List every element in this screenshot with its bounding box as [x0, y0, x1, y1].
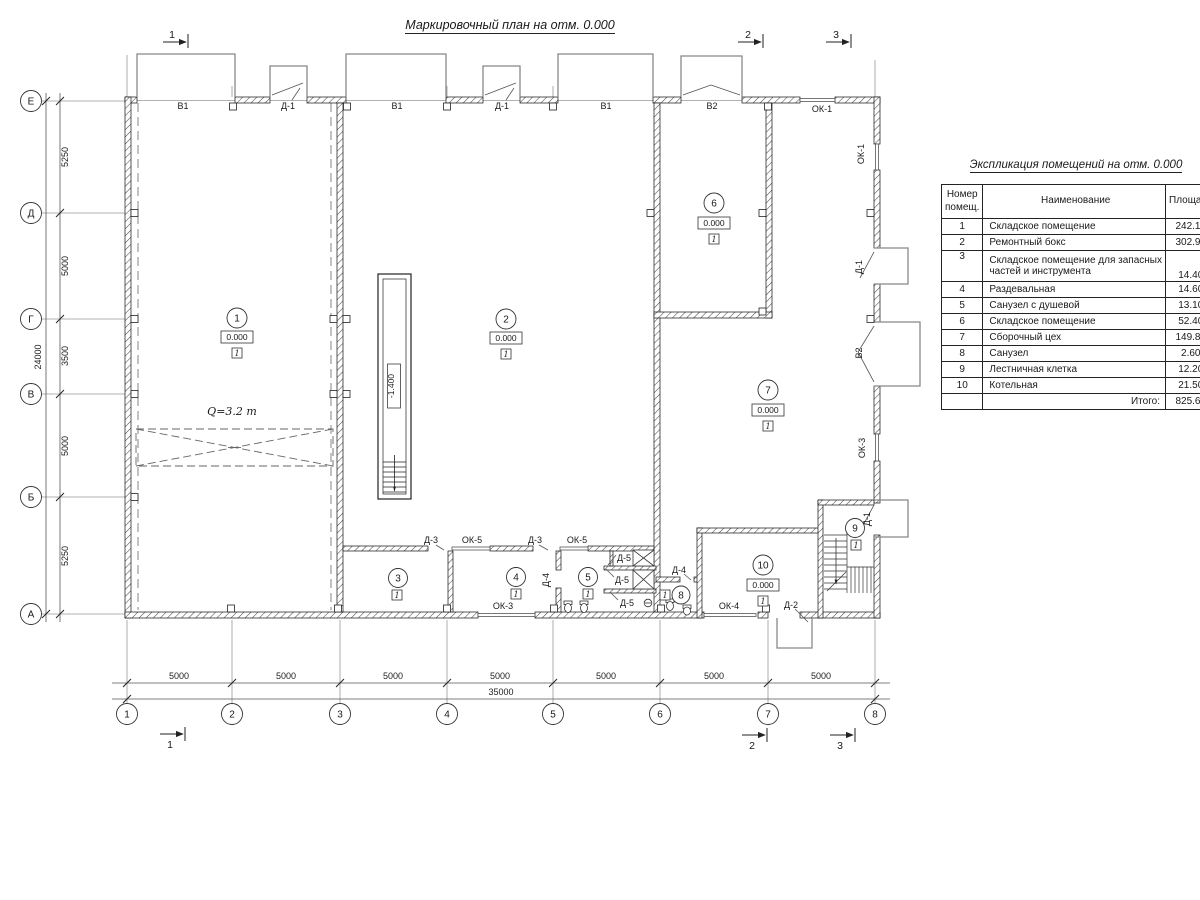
label-door-d3-2: Д-3: [528, 535, 542, 545]
dim-bottom-3: 5000: [383, 671, 403, 681]
svg-text:3: 3: [395, 574, 401, 585]
grid-row-e: Е: [28, 97, 35, 108]
room-marker-8: 8 1: [660, 586, 690, 604]
grid-row-b: Б: [28, 493, 35, 504]
grid-col-6: 6: [657, 710, 663, 721]
door-d2-canopy-bottom: [777, 618, 812, 648]
explication-row: 8 Санузел 2.60: [942, 346, 1200, 362]
room-marker-3: 3 1: [389, 569, 408, 601]
windows: [452, 99, 879, 617]
svg-text:0.000: 0.000: [703, 218, 725, 228]
grid-col-8: 8: [872, 710, 878, 721]
label-gate-v1-3: В1: [600, 101, 611, 111]
toilet: [564, 601, 572, 613]
label-door-d1-right-2: Д-1: [862, 512, 872, 526]
explication-row: 1 Складское помещение 242.10: [942, 219, 1200, 235]
svg-text:0.000: 0.000: [495, 333, 517, 343]
crane-bridge: [136, 429, 333, 466]
gate-v2-canopy-right: [874, 322, 920, 386]
gate-v1-canopy-2: [346, 54, 446, 97]
dim-bottom-4: 5000: [490, 671, 510, 681]
label-window-ok1-right: ОК-1: [856, 144, 866, 164]
label-window-ok5-1: ОК-5: [462, 535, 482, 545]
room-marker-7: 7 0.000 1: [752, 380, 784, 431]
gate-v1-canopy-3: [558, 54, 653, 97]
room-marker-5: 5 1: [579, 568, 598, 600]
svg-text:4: 4: [513, 573, 519, 584]
svg-text:0.000: 0.000: [752, 580, 774, 590]
svg-text:2: 2: [503, 315, 509, 326]
dim-bottom-6: 5000: [704, 671, 724, 681]
label-door-d3-1: Д-3: [424, 535, 438, 545]
section-mark-1-bottom: 1: [167, 739, 173, 751]
label-window-ok3-right: ОК-3: [857, 438, 867, 458]
toilet: [666, 599, 674, 611]
label-gate-v2-top: В2: [706, 101, 717, 111]
explication-row: 4 Раздевальная 14.60: [942, 282, 1200, 298]
label-door-d5-1: Д-5: [617, 553, 631, 563]
label-gate-v1-2: В1: [391, 101, 402, 111]
grid-row-g: Г: [28, 315, 34, 326]
grid-col-5: 5: [550, 710, 556, 721]
section-marks: 1 2 3 1 2 3: [160, 29, 855, 752]
explication-row: 6 Складское помещение 52.40: [942, 314, 1200, 330]
label-door-d2-bottom: Д-2: [784, 600, 798, 610]
explication-total-row: Итого: 825.60: [942, 394, 1200, 410]
label-window-ok5-2: ОК-5: [567, 535, 587, 545]
explication-table: Номерпомещ. Наименование Площадь Капо 1 …: [941, 184, 1200, 410]
left-dimensions: 5250 5000 3500 5000 5250 24000: [33, 93, 70, 622]
label-door-d1-2: Д-1: [495, 101, 509, 111]
grid-col-1: 1: [124, 710, 130, 721]
dim-bottom-2: 5000: [276, 671, 296, 681]
drain-symbol: [644, 599, 652, 607]
section-mark-3-top: 3: [833, 29, 839, 41]
svg-text:1: 1: [662, 591, 667, 600]
gate-v1-canopy-1: [137, 54, 235, 97]
label-window-ok1-top: ОК-1: [812, 104, 832, 114]
explication-row: 9 Лестничная клетка 12.20: [942, 362, 1200, 378]
svg-text:6: 6: [711, 199, 717, 210]
grid-col-7: 7: [765, 710, 771, 721]
door-projections: [137, 54, 920, 648]
door-d1-canopy-right-2: [874, 500, 908, 537]
svg-text:9: 9: [852, 524, 858, 535]
explication-row: 2 Ремонтный бокс 302.90: [942, 235, 1200, 251]
grid-col-2: 2: [229, 710, 235, 721]
svg-text:1: 1: [760, 597, 765, 606]
dim-left-3: 3500: [60, 346, 70, 366]
room-marker-4: 4 1: [507, 568, 526, 600]
dim-left-total: 24000: [33, 344, 43, 369]
dim-bottom-1: 5000: [169, 671, 189, 681]
bottom-dimensions: 5000 5000 5000 5000 5000 5000 5000 35000: [112, 671, 890, 703]
window-ok3-right: [876, 434, 879, 461]
shower-stall: [633, 570, 654, 589]
shower-stall: [633, 550, 654, 566]
door-d1-canopy-2: [483, 66, 520, 97]
total-value: 825.60: [1166, 394, 1200, 410]
axis-lines: [42, 55, 880, 703]
room-marker-1: 1 0.000 1: [221, 308, 253, 358]
door-d1-canopy-1: [270, 66, 307, 97]
page: Маркировочный план на отм. 0.000 Эксплик…: [0, 0, 1200, 900]
svg-text:1: 1: [234, 314, 240, 325]
toilet: [683, 605, 691, 615]
dim-left-5: 5250: [60, 546, 70, 566]
dim-bottom-5: 5000: [596, 671, 616, 681]
svg-text:1: 1: [234, 349, 239, 358]
dim-left-4: 5000: [60, 436, 70, 456]
explication-row: 10 Котельная 21.50: [942, 378, 1200, 394]
svg-text:10: 10: [757, 561, 769, 572]
section-mark-3-bottom: 3: [837, 740, 843, 752]
svg-text:1: 1: [503, 350, 508, 359]
label-door-d5-2: Д-5: [615, 575, 629, 585]
total-label: Итого:: [983, 394, 1166, 410]
window-ok5-left: [452, 547, 490, 550]
section-mark-2-bottom: 2: [749, 740, 755, 752]
window-ok1-top: [800, 99, 835, 102]
explication-row: 7 Сборочный цех 149.80: [942, 330, 1200, 346]
label-window-ok4-bottom: ОК-4: [719, 601, 739, 611]
explication-title: Экспликация помещений на отм. 0.000: [960, 159, 1192, 173]
svg-text:1: 1: [585, 590, 590, 599]
crane-capacity-label: Q=3.2 т: [207, 405, 257, 418]
label-gate-v1-1: В1: [177, 101, 188, 111]
svg-text:1: 1: [765, 422, 770, 431]
dim-left-2: 5000: [60, 256, 70, 276]
label-door-d4-2: Д-4: [672, 565, 686, 575]
svg-text:0.000: 0.000: [757, 405, 779, 415]
svg-text:5: 5: [585, 573, 591, 584]
label-door-d5-3: Д-5: [620, 598, 634, 608]
window-ok5-right: [560, 547, 588, 550]
grid-row-v: В: [28, 390, 35, 401]
label-door-d1-1: Д-1: [281, 101, 295, 111]
explication-row: 3 Складское помещение для запасныхчастей…: [942, 251, 1200, 282]
label-door-d4-1: Д-4: [541, 573, 551, 587]
floor-plan-svg: Q=3.2 т -1.400: [0, 0, 1200, 900]
svg-text:0.000: 0.000: [226, 332, 248, 342]
dim-bottom-total: 35000: [488, 687, 513, 697]
label-window-ok3-bottom: ОК-3: [493, 601, 513, 611]
svg-text:1: 1: [513, 590, 518, 599]
window-ok4-bottom: [704, 614, 756, 617]
room-marker-2: 2 0.000 1: [490, 309, 522, 359]
door-d1-canopy-right-1: [874, 248, 908, 284]
stairs: [824, 533, 874, 593]
svg-text:1: 1: [394, 591, 399, 600]
section-mark-1-top: 1: [169, 29, 175, 41]
dim-bottom-7: 5000: [811, 671, 831, 681]
toilet: [580, 601, 588, 613]
explication-header: Номерпомещ. Наименование Площадь Капо: [942, 185, 1200, 219]
label-gate-v2-right: В2: [854, 347, 864, 358]
section-mark-2-top: 2: [745, 29, 751, 41]
drawing-title: Маркировочный план на отм. 0.000: [370, 18, 650, 34]
grid-col-3: 3: [337, 710, 343, 721]
room-marker-6: 6 0.000 1: [698, 193, 730, 244]
svg-text:1: 1: [853, 541, 858, 550]
window-ok1-right: [876, 144, 879, 170]
window-ok3-bottom: [478, 614, 535, 617]
grid-row-a: А: [28, 610, 35, 621]
svg-text:7: 7: [765, 386, 771, 397]
svg-text:1: 1: [711, 235, 716, 244]
grid-row-d: Д: [28, 209, 35, 220]
explication-row: 5 Санузел с душевой 13.10: [942, 298, 1200, 314]
dim-left-1: 5250: [60, 147, 70, 167]
label-door-d1-right-1: Д-1: [854, 260, 864, 274]
svg-text:8: 8: [678, 591, 684, 602]
pit-depth-label: -1.400: [386, 374, 396, 398]
room-marker-10: 10 0.000 1: [747, 555, 779, 606]
grid-col-4: 4: [444, 710, 450, 721]
gate-v2-canopy-top: [681, 56, 742, 97]
